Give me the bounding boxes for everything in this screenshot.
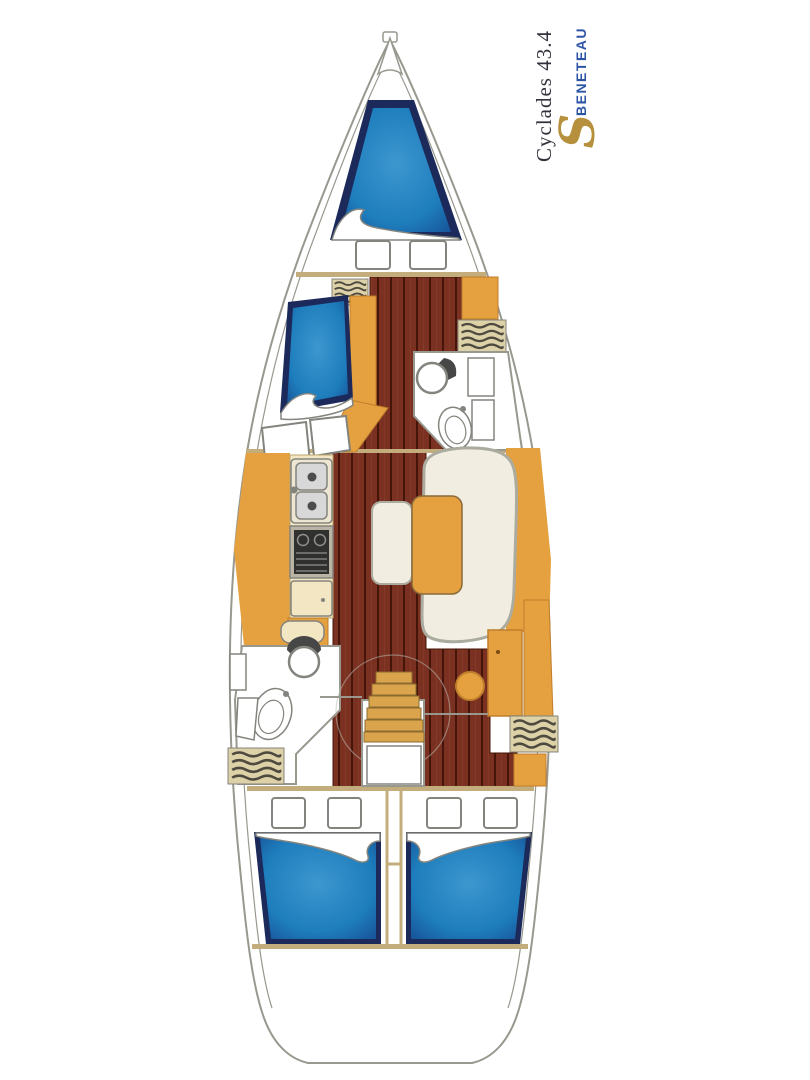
nav-cabinet-aft [514,754,546,786]
forward-head-toilet [417,363,447,393]
aft-head-faucet-icon [283,691,289,697]
aft-hatch-3 [427,798,461,828]
aft-berth-foot-rail [252,944,528,949]
boat-floorplan-drawing [0,0,810,1080]
galley-faucet-icon [291,487,298,494]
wardrobe-port [350,296,376,406]
icebox-handle-icon [321,598,325,602]
boat-floorplan-page: Cyclades 43.4 BENETEAU S [0,0,810,1080]
nav-stool [456,672,484,700]
bow-step-right [410,241,446,269]
galley-sink-drain-1-icon [308,473,317,482]
port-berth-mattress [287,301,348,406]
aft-hatch-1 [272,798,305,828]
bow-step-left [356,241,390,269]
bulkhead-forward [296,272,486,277]
aft-hatch-2 [328,798,361,828]
port-berth-drawer-2 [310,416,350,456]
nav-bench [524,600,553,716]
aft-head-cabinet [230,654,246,690]
brand-name: BENETEAU [574,6,588,116]
aft-head-toilet [289,647,319,677]
aft-head-shelf [236,698,258,740]
chart-table-latch-icon [496,650,500,654]
forward-head-counter-1 [468,358,494,396]
beneteau-logo-icon: S [549,103,607,159]
salon-bench [372,502,412,584]
chart-table [488,630,522,716]
galley-icebox-lid [291,581,332,616]
forward-head-counter-2 [472,400,494,440]
salon-table [412,496,462,594]
aft-hatch-4 [484,798,517,828]
wardrobe-starboard [462,277,498,319]
forward-head-faucet-icon [460,406,466,412]
galley-sink-drain-2-icon [308,502,317,511]
galley [234,453,333,646]
engine-hatch [367,746,421,784]
